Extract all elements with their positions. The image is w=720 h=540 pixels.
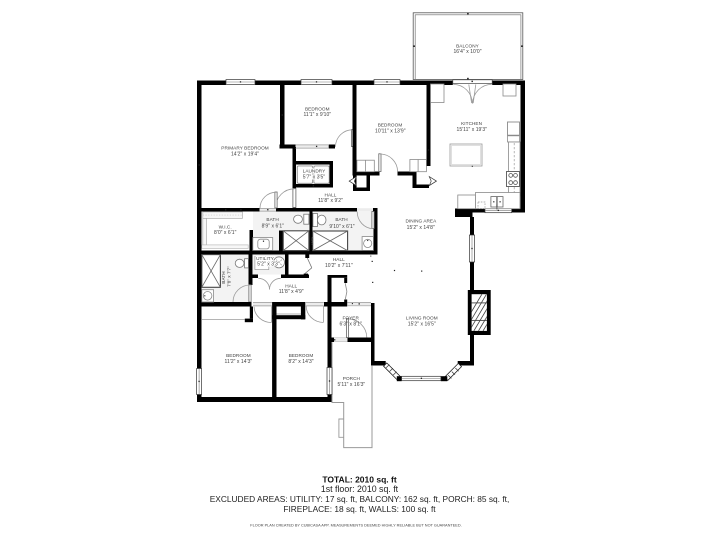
svg-text:PORCH: PORCH	[343, 376, 360, 381]
svg-text:7'8" x 7'7": 7'8" x 7'7"	[227, 266, 232, 287]
svg-text:5'11" x 16'3": 5'11" x 16'3"	[338, 382, 366, 388]
svg-text:BEDROOM: BEDROOM	[305, 106, 330, 111]
svg-text:EXCLUDED AREAS: UTILITY: 17 sq: EXCLUDED AREAS: UTILITY: 17 sq. ft, BALC…	[210, 494, 510, 504]
svg-text:16'4" x 10'0": 16'4" x 10'0"	[453, 49, 481, 55]
svg-text:15'2" x 16'5": 15'2" x 16'5"	[408, 321, 436, 327]
svg-text:11'8" x 9'2": 11'8" x 9'2"	[318, 198, 343, 204]
svg-text:FIREPLACE: 18 sq. ft, WALLS: 1: FIREPLACE: 18 sq. ft, WALLS: 100 sq. ft	[283, 504, 436, 514]
svg-text:FLOOR PLAN CREATED BY CUBICASA: FLOOR PLAN CREATED BY CUBICASA APP. MEAS…	[250, 524, 461, 528]
svg-text:W.I.C.: W.I.C.	[219, 224, 232, 229]
svg-text:LAUNDRY: LAUNDRY	[303, 169, 326, 174]
svg-text:BEDROOM: BEDROOM	[226, 353, 251, 358]
svg-text:15'11" x 19'3": 15'11" x 19'3"	[457, 127, 488, 133]
svg-text:FOYER: FOYER	[342, 315, 359, 320]
svg-text:HALL: HALL	[333, 257, 345, 262]
svg-text:9'10" x 6'1": 9'10" x 6'1"	[329, 224, 354, 230]
svg-text:15'2" x 14'8": 15'2" x 14'8"	[407, 225, 435, 231]
svg-text:KITCHEN: KITCHEN	[461, 121, 482, 126]
svg-text:BATH: BATH	[266, 217, 278, 222]
svg-text:BALCONY: BALCONY	[456, 43, 480, 48]
svg-text:LINEN: LINEN	[311, 237, 315, 245]
svg-text:1st floor: 2010 sq. ft: 1st floor: 2010 sq. ft	[321, 484, 399, 494]
svg-text:DINING AREA: DINING AREA	[406, 219, 438, 224]
svg-text:LIVING ROOM: LIVING ROOM	[406, 316, 438, 321]
svg-text:BEDROOM: BEDROOM	[378, 123, 403, 128]
svg-text:8'2" x 14'3": 8'2" x 14'3"	[288, 359, 313, 365]
svg-text:8'9" x 6'1": 8'9" x 6'1"	[262, 224, 285, 230]
svg-text:BEDROOM: BEDROOM	[289, 353, 314, 358]
svg-text:11'1" x 9'10": 11'1" x 9'10"	[303, 112, 331, 118]
svg-text:14'2" x 19'4": 14'2" x 19'4"	[231, 151, 259, 157]
svg-text:HALL: HALL	[325, 192, 337, 197]
svg-text:HALL: HALL	[285, 283, 297, 288]
svg-text:BATH: BATH	[221, 271, 226, 283]
svg-text:BATH: BATH	[335, 217, 347, 222]
svg-text:6'3" x 8'1": 6'3" x 8'1"	[339, 321, 362, 327]
svg-text:8'0" x 6'1": 8'0" x 6'1"	[214, 230, 237, 236]
svg-text:10'2" x 7'11": 10'2" x 7'11"	[325, 263, 353, 269]
svg-text:UTILITY: UTILITY	[256, 256, 275, 261]
svg-text:PRIMARY BEDROOM: PRIMARY BEDROOM	[221, 146, 269, 151]
svg-text:11'8" x 4'9": 11'8" x 4'9"	[279, 289, 304, 295]
svg-text:5'2" x 3'3": 5'2" x 3'3"	[257, 262, 280, 268]
svg-text:5'7" x 3'5": 5'7" x 3'5"	[303, 175, 326, 181]
svg-text:11'2" x 14'3": 11'2" x 14'3"	[225, 359, 253, 365]
svg-text:10'11" x 13'9": 10'11" x 13'9"	[375, 129, 406, 135]
